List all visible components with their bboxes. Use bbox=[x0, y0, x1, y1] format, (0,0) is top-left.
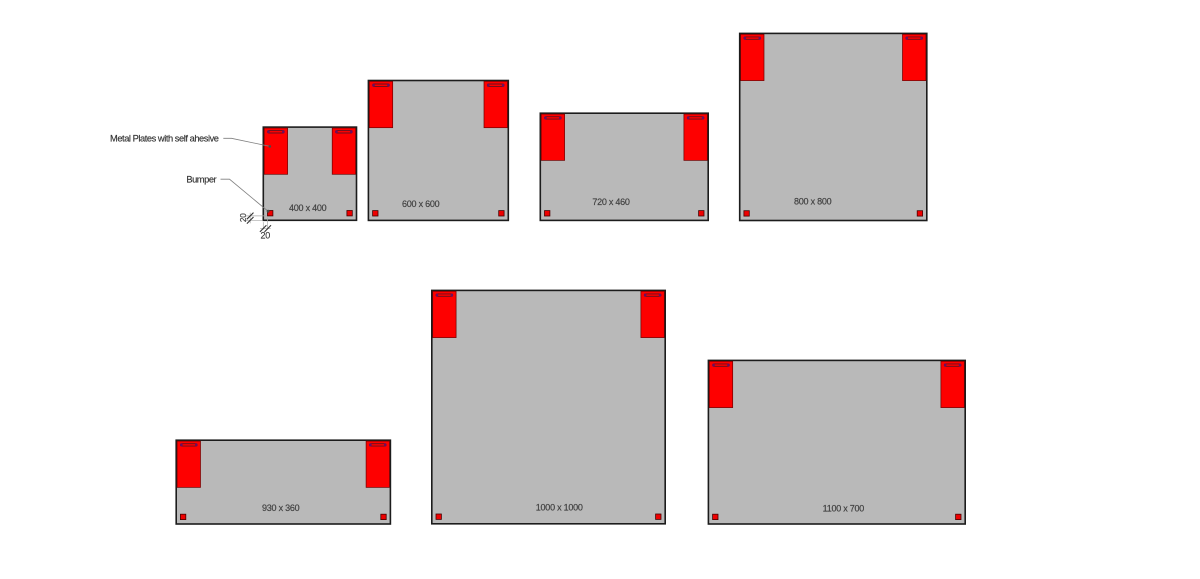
svg-text:800 x 800: 800 x 800 bbox=[794, 196, 832, 206]
svg-text:600 x 600: 600 x 600 bbox=[402, 199, 440, 209]
svg-text:Metal Plates with self ahesive: Metal Plates with self ahesive bbox=[110, 134, 219, 144]
svg-text:720 x 460: 720 x 460 bbox=[592, 197, 630, 207]
svg-text:400 x 400: 400 x 400 bbox=[289, 203, 327, 213]
svg-text:Bumper: Bumper bbox=[186, 174, 216, 184]
svg-text:1000 x 1000: 1000 x 1000 bbox=[536, 503, 583, 513]
svg-text:20: 20 bbox=[239, 213, 248, 222]
svg-text:1100 x 700: 1100 x 700 bbox=[823, 504, 865, 514]
svg-text:20: 20 bbox=[261, 231, 271, 241]
svg-text:930 x 360: 930 x 360 bbox=[262, 503, 300, 513]
